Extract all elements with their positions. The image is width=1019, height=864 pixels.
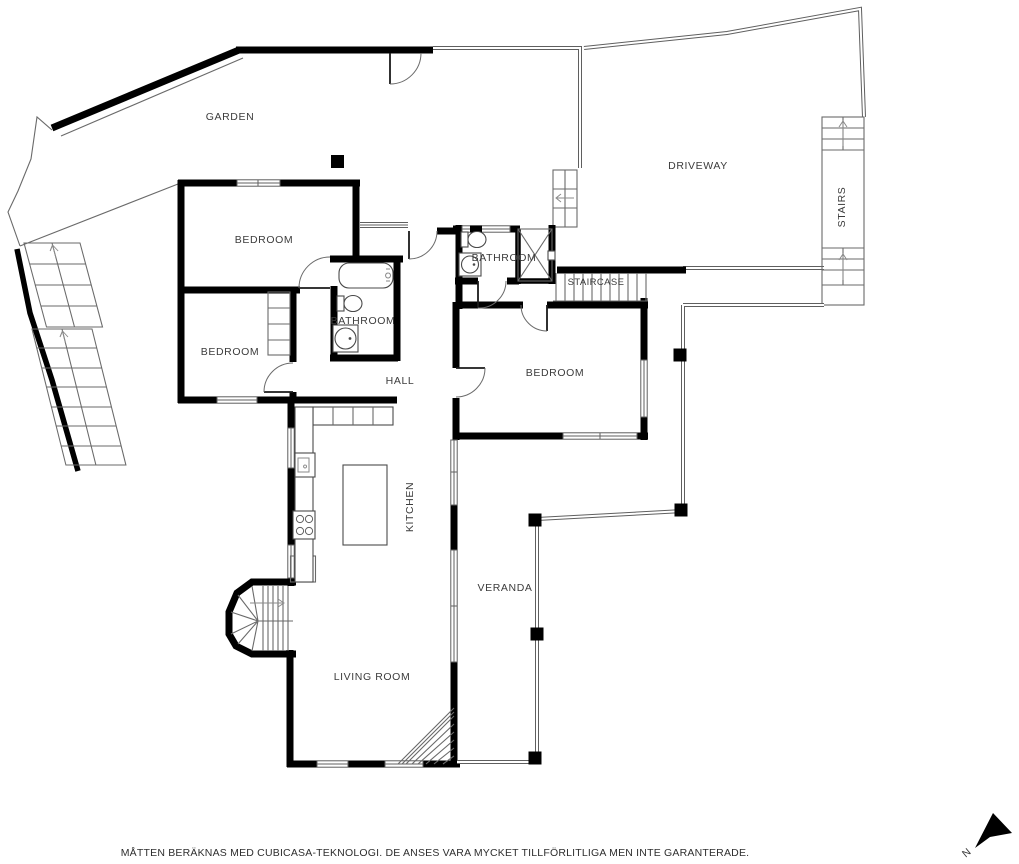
room-labels: BEDROOM BATHROOM BATHROOM BEDROOM BEDROO… — [201, 234, 584, 683]
garden-area: GARDEN — [8, 48, 580, 246]
indoor-staircase: STAIRCASE — [553, 273, 648, 301]
exterior-stairs-wall — [17, 249, 78, 471]
stove — [293, 511, 315, 539]
shower-fitting — [548, 251, 555, 260]
label-driveway: DRIVEWAY — [668, 160, 728, 172]
veranda-post — [529, 514, 542, 527]
bathtub — [339, 263, 393, 288]
veranda-post — [675, 504, 688, 517]
bedroom2-door — [264, 363, 293, 392]
kitchen-island — [343, 465, 387, 545]
exterior-stairs — [17, 243, 126, 471]
label-bathroom1: BATHROOM — [331, 315, 396, 327]
bedroom3-west-door — [456, 368, 485, 397]
exterior-stairs-lower — [32, 329, 126, 465]
bedroom2-wardrobe — [268, 292, 290, 355]
north-arrow-icon — [975, 813, 1012, 848]
label-stairs: STAIRS — [836, 187, 848, 228]
bedroom3-north-door — [521, 305, 547, 331]
bathroom1-fixtures — [333, 263, 393, 352]
entry-glass-panel — [360, 223, 408, 228]
disclaimer-text: MÅTTEN BERÄKNAS MED CUBICASA-TEKNOLOGI. … — [121, 846, 750, 859]
label-bedroom1: BEDROOM — [235, 234, 293, 246]
veranda-post — [529, 752, 542, 765]
toilet-tank — [337, 296, 344, 311]
kitchen-fixtures — [293, 407, 393, 582]
driveway-area: DRIVEWAY — [553, 9, 864, 268]
label-staircase: STAIRCASE — [568, 277, 625, 288]
winder-stairs — [231, 586, 293, 651]
front-door — [409, 231, 437, 259]
toilet-tank — [461, 232, 468, 247]
veranda-post — [674, 349, 687, 362]
floor-plan-canvas: GARDEN DRIVEWAY STAIRS — [0, 0, 1019, 864]
garden-fence-inner-line — [61, 58, 243, 136]
sink — [335, 328, 356, 349]
veranda-post — [531, 628, 544, 641]
label-hall: HALL — [386, 375, 415, 387]
garden-boundary-right — [433, 48, 580, 168]
exterior-stairs-upper — [24, 243, 103, 327]
garden-pillar — [331, 155, 344, 168]
label-bedroom2: BEDROOM — [201, 346, 259, 358]
label-bedroom3: BEDROOM — [526, 367, 584, 379]
label-kitchen: KITCHEN — [404, 482, 416, 532]
corner-stairs — [398, 708, 454, 764]
stairs-shaft: STAIRS — [822, 117, 864, 305]
toilet-bowl — [468, 232, 486, 248]
garden-gate-arc — [390, 53, 421, 84]
bathroom1-door — [299, 257, 330, 288]
floor-plan-page: GARDEN DRIVEWAY STAIRS — [0, 0, 1019, 864]
label-bathroom2: BATHROOM — [472, 252, 537, 264]
label-living-room: LIVING ROOM — [334, 671, 411, 683]
kitchen-counter-left — [295, 407, 313, 582]
house-walls — [178, 180, 686, 767]
driveway-boundary — [584, 9, 864, 117]
label-veranda: VERANDA — [478, 582, 533, 594]
garden-boundary-left — [8, 117, 52, 246]
compass: N — [960, 813, 1012, 860]
label-garden: GARDEN — [206, 111, 255, 123]
garden-boundary-diagonal — [20, 184, 178, 246]
entry-steps — [553, 170, 577, 227]
toilet-bowl — [344, 296, 362, 312]
compass-north-label: N — [960, 846, 974, 860]
